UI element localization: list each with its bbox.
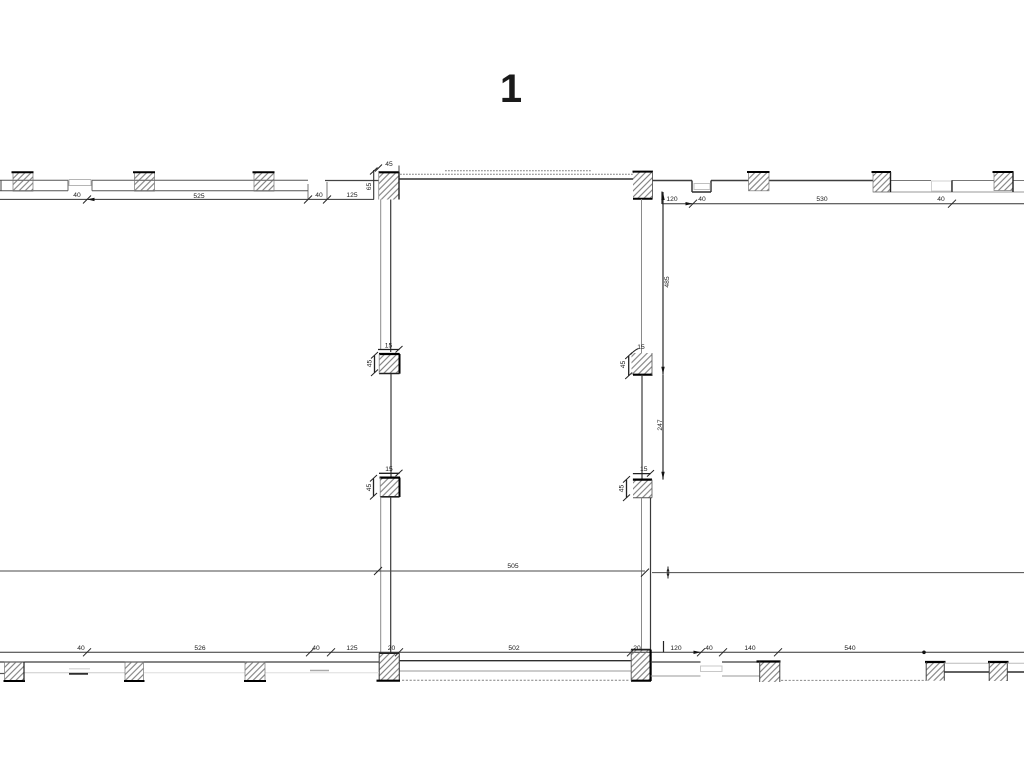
- svg-text:40: 40: [312, 645, 320, 652]
- svg-text:40: 40: [315, 192, 323, 199]
- svg-text:125: 125: [346, 645, 357, 652]
- svg-text:140: 140: [744, 645, 755, 652]
- svg-text:15: 15: [385, 466, 393, 473]
- svg-text:505: 505: [507, 563, 518, 570]
- svg-text:45: 45: [620, 361, 627, 369]
- svg-text:526: 526: [194, 645, 205, 652]
- svg-text:525: 525: [193, 193, 204, 200]
- svg-text:120: 120: [670, 645, 681, 652]
- svg-text:502: 502: [508, 645, 519, 652]
- svg-text:65: 65: [366, 183, 373, 191]
- svg-text:40: 40: [937, 196, 945, 203]
- svg-text:20: 20: [388, 645, 396, 652]
- svg-text:45: 45: [366, 360, 373, 368]
- svg-text:40: 40: [77, 645, 85, 652]
- svg-text:540: 540: [844, 645, 855, 652]
- svg-text:40: 40: [705, 645, 713, 652]
- svg-text:15: 15: [385, 343, 393, 350]
- svg-text:485: 485: [664, 276, 671, 287]
- svg-text:1: 1: [500, 67, 522, 111]
- svg-text:40: 40: [73, 192, 81, 199]
- svg-text:530: 530: [816, 196, 827, 203]
- svg-text:120: 120: [666, 196, 677, 203]
- svg-text:40: 40: [698, 196, 706, 203]
- svg-text:45: 45: [385, 161, 393, 168]
- svg-text:15: 15: [640, 466, 648, 473]
- svg-text:15: 15: [637, 344, 645, 351]
- svg-text:247: 247: [657, 419, 664, 430]
- svg-text:45: 45: [618, 485, 625, 493]
- svg-text:125: 125: [346, 192, 357, 199]
- svg-text:45: 45: [366, 484, 373, 492]
